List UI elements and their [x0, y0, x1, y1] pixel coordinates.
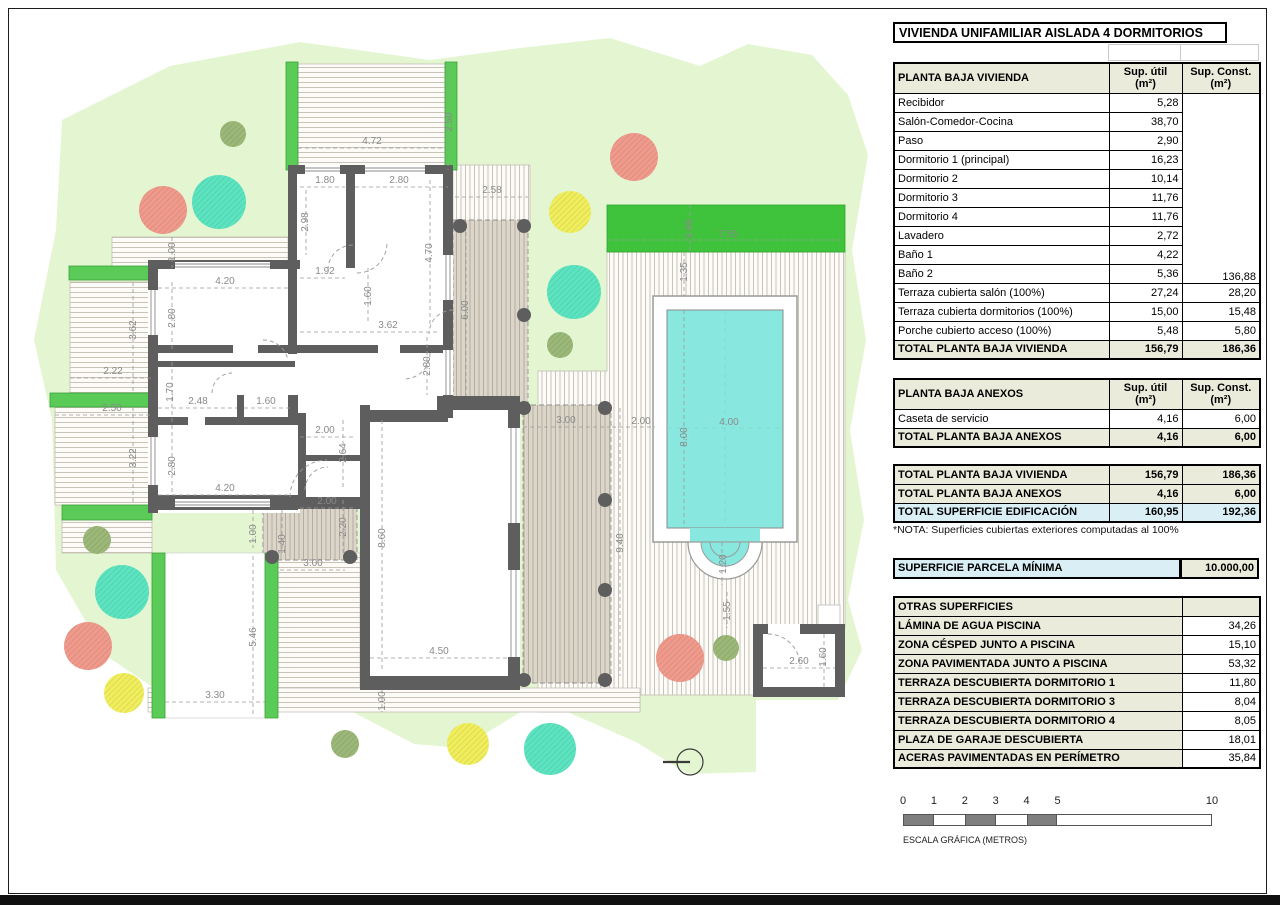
sheet-border-frame	[8, 8, 1267, 894]
sheet-bottom-edge	[0, 895, 1280, 905]
architectural-sheet: 2.504.721.802.802.984.702.586.002.007.55…	[0, 0, 1280, 905]
